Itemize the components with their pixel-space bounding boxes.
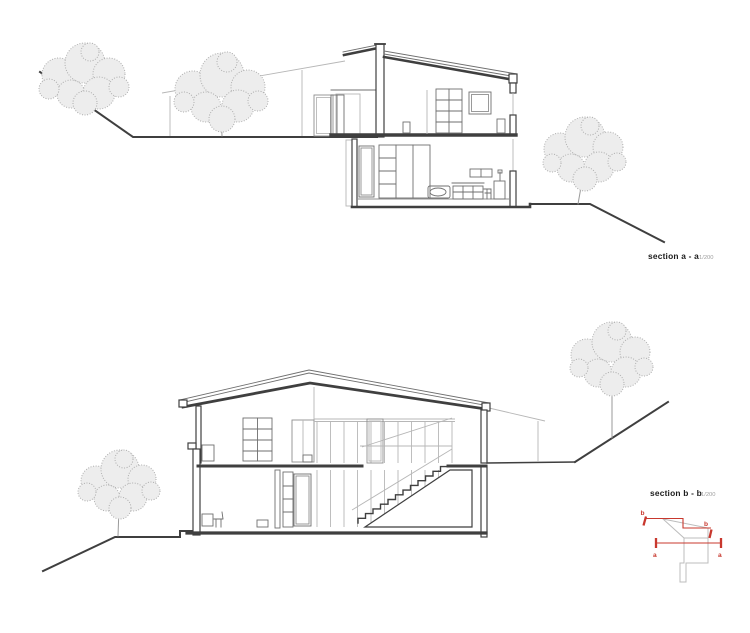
lower-floor-interior-b [202,449,472,528]
chair [214,512,223,527]
key-plan-label-a-end: a [718,552,722,559]
section-a-scale: 1/200 [699,255,714,261]
section-a-drawing: section a - a 1/200 [39,43,714,261]
under-stair-wall [365,470,472,527]
building-section-b [179,370,490,537]
section-a-label: section a - a [648,251,699,261]
key-plan-label-b-end: b [704,521,708,528]
section-b-scale: 1/200 [701,492,716,498]
lower-floor-interior-a [357,145,510,199]
section-line-b [644,517,712,539]
tree-icon [174,52,268,136]
gable-roof [183,383,486,409]
building-section-a [331,44,530,207]
tree-icon [78,450,160,536]
tree-icon [39,43,129,115]
desk [202,514,213,526]
chair [484,189,491,199]
tree-icon [543,117,626,204]
square-window [469,92,491,114]
section-b-drawing: section b - b 1/200 [43,322,716,571]
section-b-label: section b - b [650,488,702,498]
right-porch-elevation [489,408,545,462]
right-wall [481,410,487,463]
base-slab [352,204,530,207]
architectural-sections-sheet: section a - a 1/200 [0,0,750,633]
key-plan-label-b-start: b [641,510,645,517]
key-plan: b b a a [641,510,723,582]
wardrobe [379,145,430,198]
sections-drawing-svg: section a - a 1/200 [0,0,750,633]
key-plan-label-a-start: a [653,552,657,559]
mono-pitch-roof [384,57,514,80]
upper-floor-interior-a [403,89,505,134]
section-line-a [656,538,721,548]
